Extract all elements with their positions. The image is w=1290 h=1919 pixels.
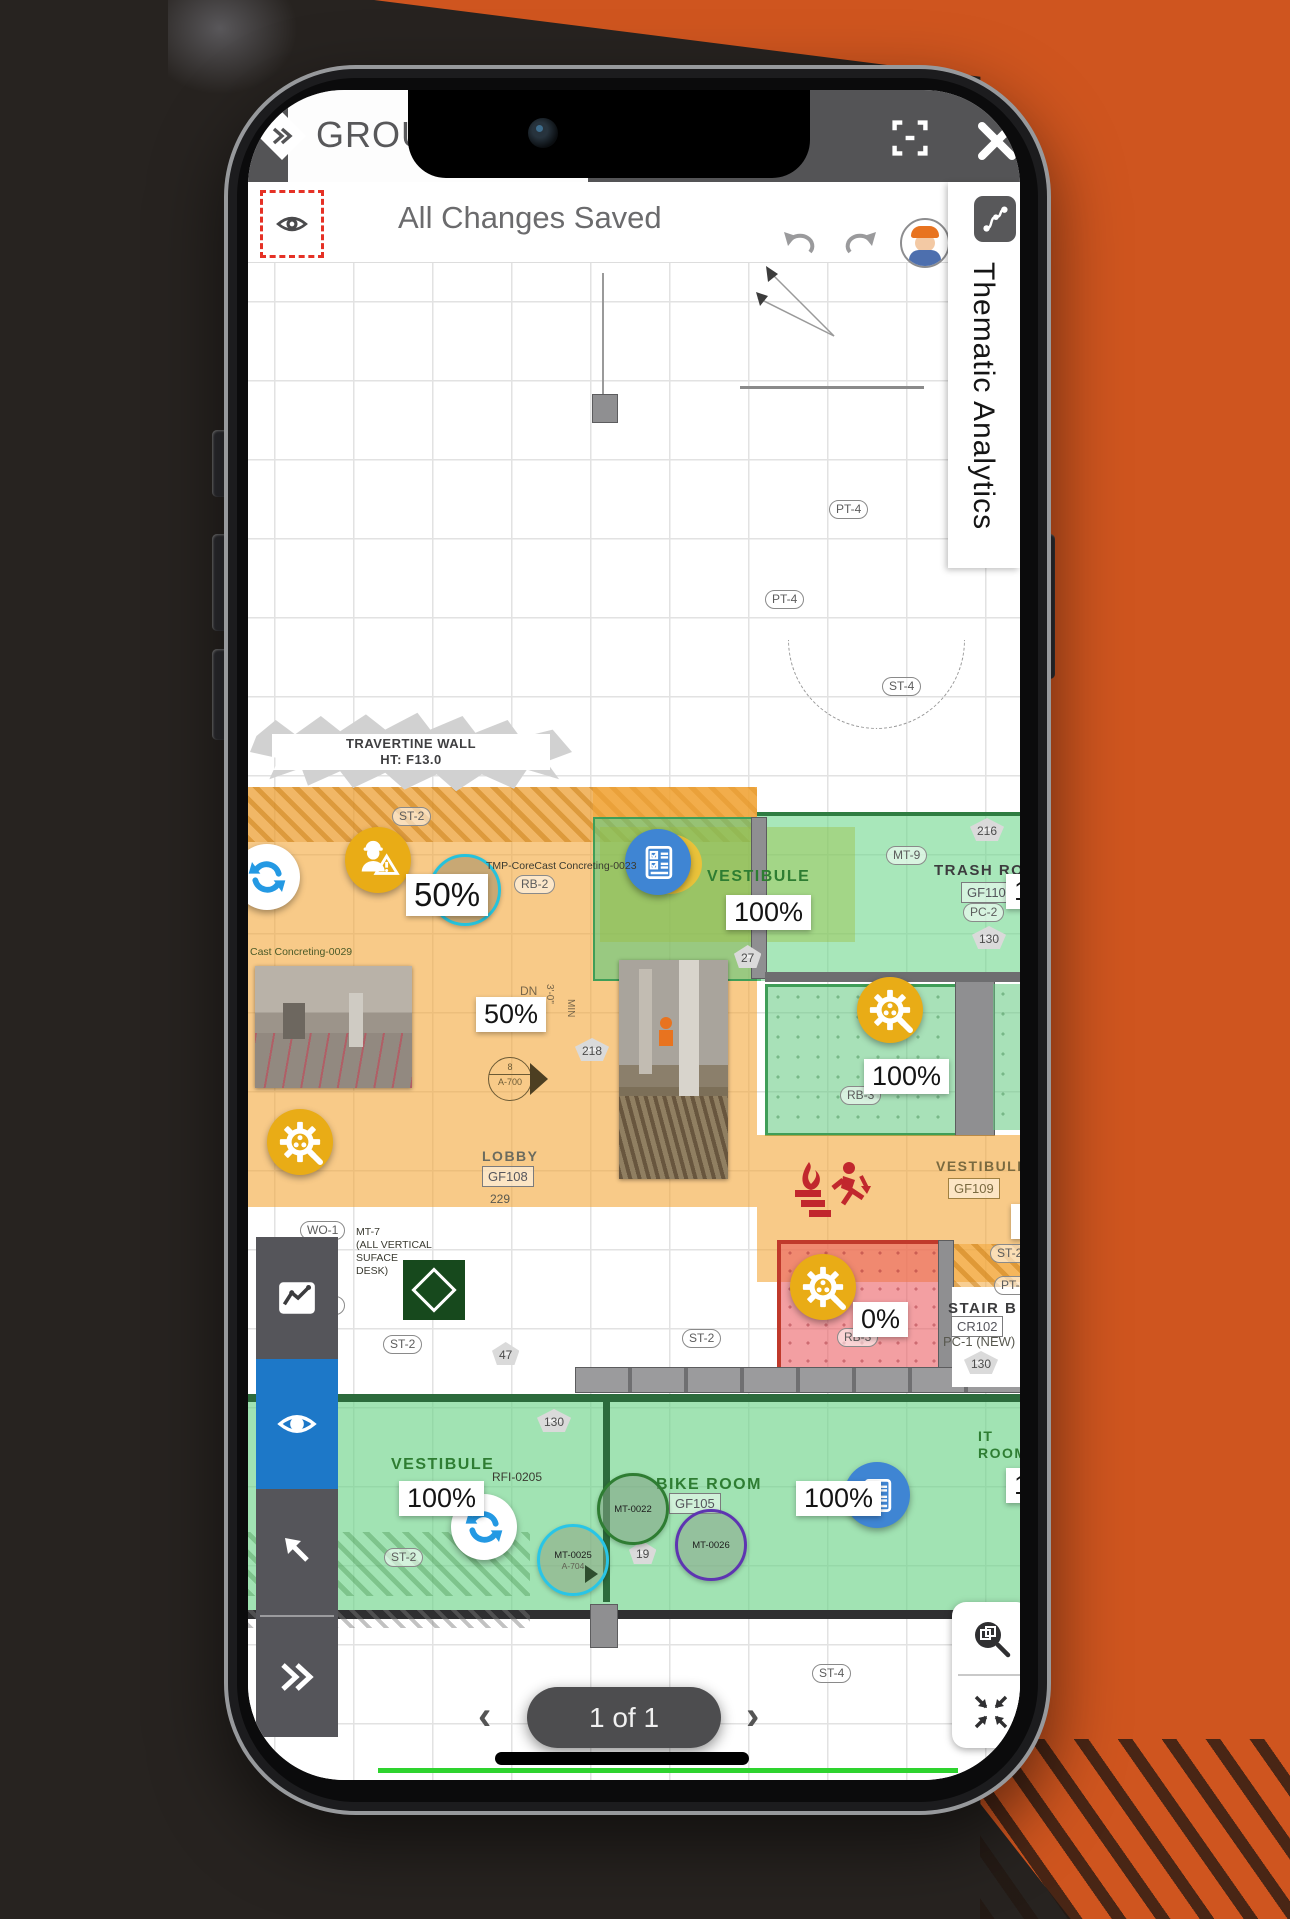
ref-label: DN <box>520 984 537 998</box>
progress-badge: 100% <box>1006 874 1020 909</box>
marker-label: MT-0026 <box>692 1540 730 1551</box>
home-indicator <box>495 1752 749 1765</box>
double-chevron-right-icon <box>277 1660 317 1694</box>
ref-label: GF108 <box>482 1166 534 1187</box>
thematic-analytics-panel[interactable]: Thematic Analytics <box>948 182 1020 568</box>
menu-button[interactable] <box>254 108 310 164</box>
callout-line1: TRAVERTINE WALL <box>346 736 476 752</box>
gear-magnifier-icon <box>277 1119 323 1165</box>
progress-badge: 50% <box>476 997 546 1032</box>
route-polyline-icon <box>980 204 1010 234</box>
double-chevron-diamond-icon <box>258 112 306 160</box>
toolbar-visibility-button[interactable] <box>256 1359 338 1489</box>
ref-label: PT-4 <box>765 590 804 609</box>
inspection-marker-west[interactable] <box>267 1109 333 1175</box>
room-vestibule-south: VESTIBULE <box>391 1456 494 1474</box>
toolbar-select-button[interactable] <box>256 1489 338 1611</box>
progress-badge: 100% <box>1006 1468 1020 1503</box>
progress-badge: 0% <box>853 1302 908 1337</box>
thematic-analytics-button[interactable] <box>974 196 1016 242</box>
overlay-green-rb3-east <box>993 984 1020 1130</box>
next-sheet-button[interactable]: › <box>746 1698 759 1734</box>
zoom-region-button[interactable] <box>952 1602 1020 1674</box>
ref-label: ST-2 <box>384 1548 423 1567</box>
ref-label: 229 <box>490 1192 510 1206</box>
eye-icon <box>276 1408 318 1440</box>
sheet-pager[interactable]: 1 of 1 <box>527 1687 721 1748</box>
fit-view-icon <box>969 1690 1013 1734</box>
close-button[interactable] <box>976 120 1018 162</box>
zoom-region-icon <box>969 1616 1013 1660</box>
overlay-orange-fill <box>593 787 757 817</box>
observation-marker-mt0025[interactable]: MT-0025 A-704 <box>537 1524 609 1596</box>
section-marker-a700: 8 A-700 <box>488 1057 548 1101</box>
wall-column <box>955 974 995 1136</box>
ref-label: PC-2 <box>963 903 1004 922</box>
sync-progress-line <box>378 1768 958 1773</box>
marker-label: MT-0022 <box>614 1504 652 1515</box>
ref-label: PT-4 <box>829 500 868 519</box>
gear-magnifier-icon <box>867 987 913 1033</box>
avatar-hardhat <box>911 226 939 238</box>
front-camera <box>528 118 558 148</box>
observation-marker-mt0022[interactable]: MT-0022 <box>597 1473 669 1545</box>
progress-badge: 33% <box>1011 1204 1020 1239</box>
phone-notch <box>408 90 810 178</box>
visibility-toggle-highlight[interactable] <box>260 190 324 258</box>
progress-badge: 100% <box>726 895 811 930</box>
room-stair-b: STAIR B <box>948 1300 1017 1317</box>
note-rfi-0205: RFI-0205 <box>492 1470 542 1484</box>
progress-badge: 100% <box>796 1481 881 1516</box>
checklist-icon <box>636 840 680 884</box>
note-corecast-0023: TMP-CoreCast Concreting-0023 <box>486 860 637 872</box>
marker-label: MT-0025 <box>554 1550 592 1561</box>
ref-label: ST-2 <box>392 807 431 826</box>
ref-label: GF109 <box>948 1178 1000 1199</box>
toolbar-expand-button[interactable] <box>256 1617 338 1737</box>
ref-label: RB-2 <box>514 875 555 894</box>
fit-view-button[interactable] <box>952 1676 1020 1748</box>
room-it-room: IT ROOM <box>978 1428 1020 1462</box>
status-row: All Changes Saved <box>248 182 1020 262</box>
avatar-shirt <box>909 250 941 266</box>
room-bike-room: BIKE ROOM <box>656 1476 762 1494</box>
redo-button[interactable] <box>844 228 880 258</box>
background-smudge <box>168 0 298 95</box>
progress-badge: 50% <box>406 874 488 916</box>
ref-label: ST-2 <box>383 1335 422 1354</box>
note-corecast-0029: Cast Concreting-0029 <box>250 946 352 958</box>
app-screen: TRAVERTINE WALL HT: F13.0 VESTIBULE TRAS… <box>248 90 1020 1780</box>
progress-badge: 100% <box>864 1059 949 1094</box>
sync-icon <box>248 857 287 897</box>
ref-label: ST-2 <box>682 1329 721 1348</box>
progress-badge: 100% <box>399 1481 484 1516</box>
ref-label: ST-4 <box>812 1664 851 1683</box>
close-icon <box>976 120 1018 162</box>
ref-label: MT-9 <box>886 846 927 865</box>
callout-line2: HT: F13.0 <box>380 752 442 768</box>
tire-tracks-texture <box>980 1739 1290 1919</box>
wall-segment <box>592 394 618 423</box>
map-controls <box>952 1602 1020 1748</box>
room-vestibule-gf109: VESTIBULE <box>936 1158 1020 1174</box>
ref-label: GF110 <box>961 882 1012 903</box>
arrow-up-left-icon <box>277 1530 317 1570</box>
phone-frame: TRAVERTINE WALL HT: F13.0 VESTIBULE TRAS… <box>224 65 1051 1815</box>
diamond-marker-button[interactable] <box>403 1260 465 1320</box>
ref-label: A-704 <box>562 1561 585 1571</box>
user-avatar[interactable] <box>900 218 950 268</box>
eye-icon <box>275 211 309 237</box>
wall-line <box>602 273 604 396</box>
photo-site-west[interactable] <box>255 966 412 1088</box>
fullscreen-button[interactable] <box>888 116 932 160</box>
ref-label: ST-4 <box>882 677 921 696</box>
pager-label: 1 of 1 <box>589 1702 659 1734</box>
room-lobby: LOBBY <box>482 1148 539 1164</box>
wall-line <box>740 386 924 389</box>
left-toolbar <box>256 1237 338 1737</box>
thematic-analytics-label: Thematic Analytics <box>966 262 1000 530</box>
worker-alert-marker[interactable] <box>345 827 411 893</box>
redo-icon <box>844 228 880 258</box>
gear-magnifier-icon <box>800 1264 846 1310</box>
ref-label: PC-1 (NEW) <box>943 1334 1015 1349</box>
photo-site-center[interactable] <box>619 960 728 1179</box>
undo-button[interactable] <box>780 228 816 258</box>
undo-icon <box>780 228 816 258</box>
toolbar-analytics-button[interactable] <box>256 1237 338 1359</box>
inspection-marker-rb3[interactable] <box>857 977 923 1043</box>
ref-label: MIN <box>565 999 576 1017</box>
observation-marker-mt0026[interactable]: MT-0026 <box>675 1509 747 1581</box>
trend-chart-icon <box>276 1277 318 1319</box>
hardhat-warning-icon <box>355 837 401 883</box>
fullscreen-icon <box>888 116 932 160</box>
floor-plan-canvas[interactable]: TRAVERTINE WALL HT: F13.0 VESTIBULE TRAS… <box>248 262 1020 1780</box>
room-vestibule-north: VESTIBULE <box>707 868 810 886</box>
save-status-text: All Changes Saved <box>398 200 662 236</box>
door-jamb <box>590 1604 618 1648</box>
prev-sheet-button[interactable]: ‹ <box>478 1698 491 1734</box>
ref-label: ST-2 <box>990 1244 1020 1263</box>
inspection-marker-red-room[interactable] <box>790 1254 856 1320</box>
ref-label: PT-16 <box>994 1276 1020 1295</box>
fire-exit-icon <box>793 1160 873 1230</box>
